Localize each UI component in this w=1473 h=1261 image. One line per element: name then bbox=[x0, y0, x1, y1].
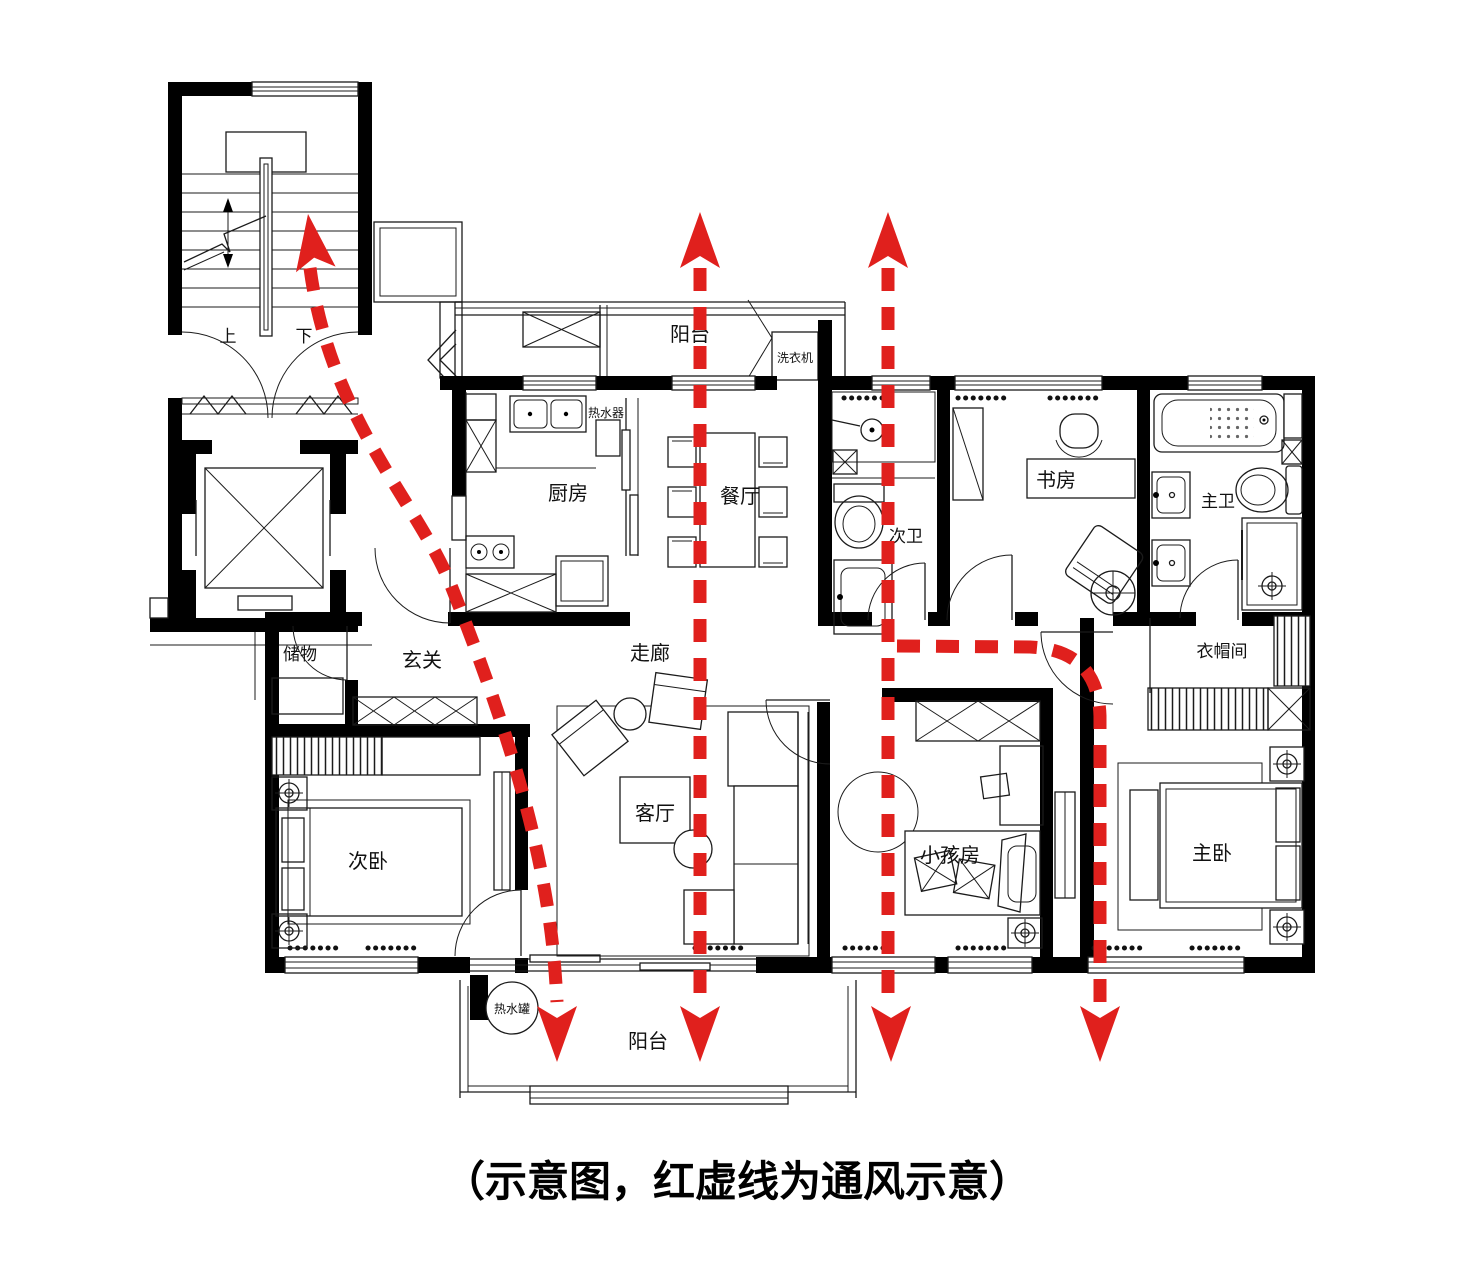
hot-water-tank-label: 热水罐 bbox=[494, 1002, 530, 1016]
stair-down-label: 下 bbox=[296, 327, 313, 346]
caption-text: （示意图，红虚线为通风示意） bbox=[443, 1158, 1031, 1205]
kitchen-label: 厨房 bbox=[548, 482, 588, 505]
stairwell: 上 下 bbox=[168, 82, 372, 418]
exterior-connector bbox=[374, 222, 462, 390]
kids-room: 小孩房 bbox=[766, 700, 1075, 948]
living-room-label: 客厅 bbox=[635, 802, 675, 825]
floor-plan-page: 上 下 阳台 洗衣机 bbox=[0, 0, 1473, 1261]
storage-label: 储物 bbox=[283, 645, 317, 664]
entry-hall: 玄关 bbox=[353, 548, 477, 725]
bedroom-second: 次卧 bbox=[272, 737, 521, 956]
vent-arrow-down-icon bbox=[537, 1006, 577, 1062]
second-bedroom-label: 次卧 bbox=[348, 850, 388, 873]
balcony-top: 阳台 洗衣机 bbox=[455, 300, 845, 380]
bathroom-master: 主卫 bbox=[1152, 394, 1302, 620]
vent-arrow-up-icon bbox=[288, 211, 335, 272]
water-heater-label: 热水器 bbox=[588, 406, 624, 420]
study: 书房 bbox=[947, 408, 1145, 620]
entry-label: 玄关 bbox=[402, 649, 442, 672]
living-room: 客厅 bbox=[552, 673, 809, 956]
vent-arrow-down-icon bbox=[1080, 1006, 1120, 1062]
study-label: 书房 bbox=[1036, 469, 1076, 492]
balcony-bottom-label: 阳台 bbox=[628, 1030, 668, 1053]
vent-arrow-down-icon bbox=[680, 1006, 720, 1062]
washing-machine-label: 洗衣机 bbox=[777, 350, 813, 365]
cloakroom-label: 衣帽间 bbox=[1197, 642, 1248, 661]
elevator bbox=[150, 398, 372, 700]
vent-arrow-up-icon bbox=[680, 212, 720, 268]
master-bedroom-label: 主卧 bbox=[1192, 842, 1232, 865]
dining-room: 餐厅 bbox=[668, 433, 787, 567]
floor-plan-drawing: 上 下 阳台 洗衣机 bbox=[0, 0, 1473, 1261]
vent-arrow-up-icon bbox=[868, 212, 908, 268]
vent-arrow-down-icon bbox=[871, 1006, 911, 1062]
corridor: 走廊 bbox=[630, 642, 670, 665]
corridor-label: 走廊 bbox=[630, 642, 670, 665]
dining-label: 餐厅 bbox=[720, 485, 760, 508]
kids-room-label: 小孩房 bbox=[920, 844, 980, 867]
stair-up-label: 上 bbox=[220, 327, 237, 346]
balcony-bottom: 热水罐 阳台 bbox=[460, 975, 856, 1104]
storage-room: 储物 bbox=[272, 626, 347, 714]
kitchen: 热水器 厨房 bbox=[466, 392, 638, 612]
master-bath-label: 主卫 bbox=[1201, 492, 1235, 511]
bedroom-master: 主卧 bbox=[1118, 747, 1304, 944]
